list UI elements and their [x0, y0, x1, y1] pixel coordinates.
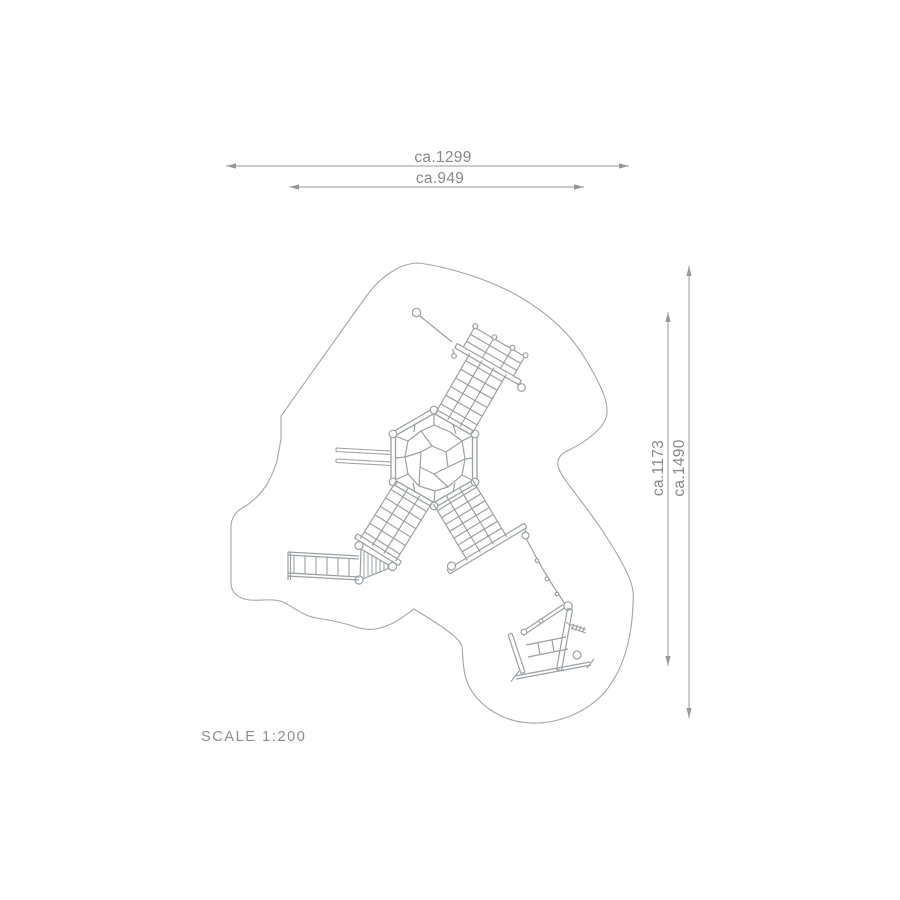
guy-line	[420, 316, 452, 342]
post-icon	[355, 542, 363, 550]
balance-climbing-frame	[508, 602, 594, 682]
bead-icon	[539, 619, 543, 623]
end-knob-icon	[522, 532, 529, 539]
ring-icon	[573, 651, 581, 659]
bottom-beam	[511, 659, 594, 682]
anchor-post-icon	[412, 308, 420, 316]
end-knob-icon	[518, 384, 526, 392]
dimension-label-right-inner: ca.1173	[650, 440, 667, 496]
ne-climbing-net-bridge	[412, 308, 528, 433]
dimension-label-right-outer: ca.1490	[671, 439, 688, 496]
dimension-top-outer: ca.1299	[226, 149, 629, 166]
scale-label: SCALE 1:200	[201, 729, 306, 745]
dimension-right-outer: ca.1490	[671, 266, 689, 718]
bridge-rails	[433, 480, 506, 560]
post-icon	[448, 562, 456, 570]
access-ladder	[288, 552, 359, 580]
se-climbing-net-bridge	[433, 480, 565, 604]
crossbar-beam	[447, 523, 527, 574]
post-icon	[389, 563, 397, 571]
plan-drawing: ca.1299 ca.949 ca.1173 ca.1490	[0, 0, 900, 900]
dimension-label-top-outer: ca.1299	[414, 149, 471, 166]
hook-icon	[452, 354, 457, 359]
dimension-right-inner: ca.1173	[650, 312, 668, 666]
dimension-top-inner: ca.949	[289, 170, 584, 187]
post-icon	[471, 430, 479, 438]
dimension-label-top-inner: ca.949	[416, 170, 464, 187]
post-icon	[389, 430, 397, 438]
slide-rails	[336, 448, 391, 466]
left-post-beam	[508, 633, 525, 673]
right-diagonal-beam	[557, 609, 573, 671]
drawing-canvas: ca.1299 ca.949 ca.1173 ca.1490	[0, 0, 900, 900]
hook-link	[453, 349, 455, 354]
bead-icon	[521, 629, 527, 635]
sw-climbing-net-bridge	[288, 481, 432, 584]
